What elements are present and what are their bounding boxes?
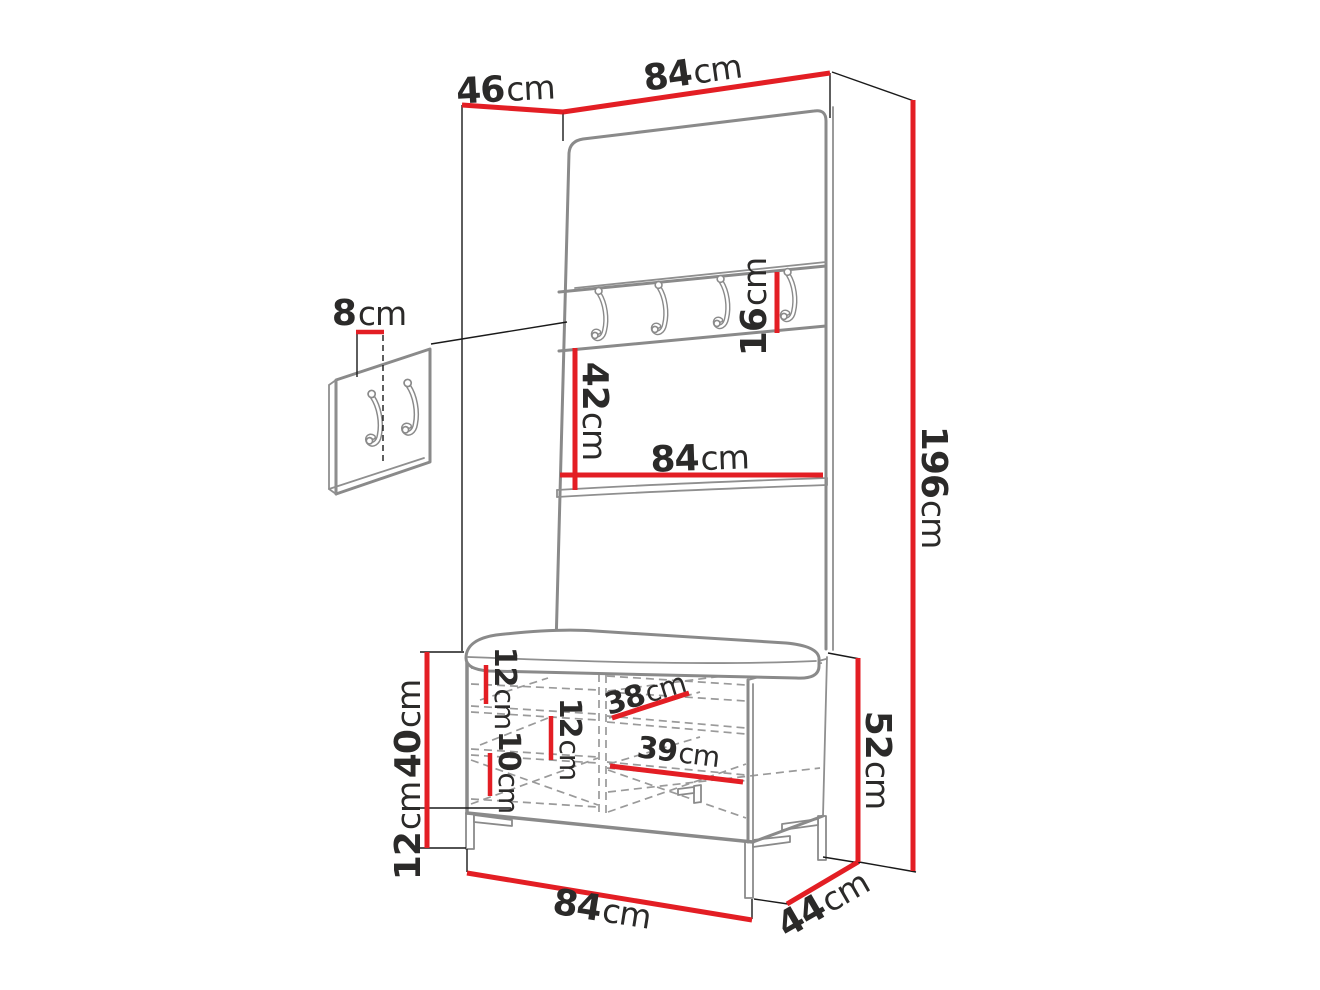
coat-hook-icon bbox=[710, 275, 730, 327]
coat-hook-icon bbox=[588, 287, 608, 339]
dim-label-width-top: 84cm bbox=[641, 45, 744, 99]
dim-label-bench-depth: 44cm bbox=[770, 862, 876, 947]
dimension-diagram: 46cm 84cm 196cm 16cm 42cm 84cm 8cm 40cm … bbox=[0, 0, 1320, 990]
dim-label-bench-middle-gap: 12cm bbox=[552, 698, 587, 780]
panel-shelf bbox=[557, 478, 827, 497]
dim-label-bench-width: 84cm bbox=[550, 882, 654, 938]
leg-front-left bbox=[466, 813, 474, 849]
leg-rear-right bbox=[818, 816, 826, 860]
dimension-labels: 46cm 84cm 196cm 16cm 42cm 84cm 8cm 40cm … bbox=[332, 45, 954, 946]
dimension-lines bbox=[356, 73, 913, 920]
dim-label-bench-total-height: 52cm bbox=[857, 711, 898, 809]
dim-label-leg-height: 12cm bbox=[388, 782, 429, 880]
dim-label-bench-lower-gap: 10cm bbox=[491, 731, 526, 813]
dim-label-bench-body-height: 40cm bbox=[388, 680, 429, 778]
leader-line bbox=[431, 322, 567, 344]
leg-rear-center bbox=[694, 785, 701, 803]
coat-hook-icon bbox=[777, 268, 797, 320]
dim-label-hook-rail-height: 16cm bbox=[734, 258, 775, 356]
dim-label-rail-to-shelf-gap: 42cm bbox=[574, 362, 615, 460]
dim-label-hook-offset: 8cm bbox=[332, 293, 406, 334]
hook-strip-detail bbox=[329, 322, 567, 494]
dim-label-total-height: 196cm bbox=[913, 426, 954, 548]
hook-rail bbox=[559, 262, 826, 351]
dim-label-bench-top-gap: 12cm bbox=[487, 647, 522, 729]
coat-hook-icon bbox=[648, 281, 668, 333]
leg-front-right bbox=[745, 842, 753, 898]
